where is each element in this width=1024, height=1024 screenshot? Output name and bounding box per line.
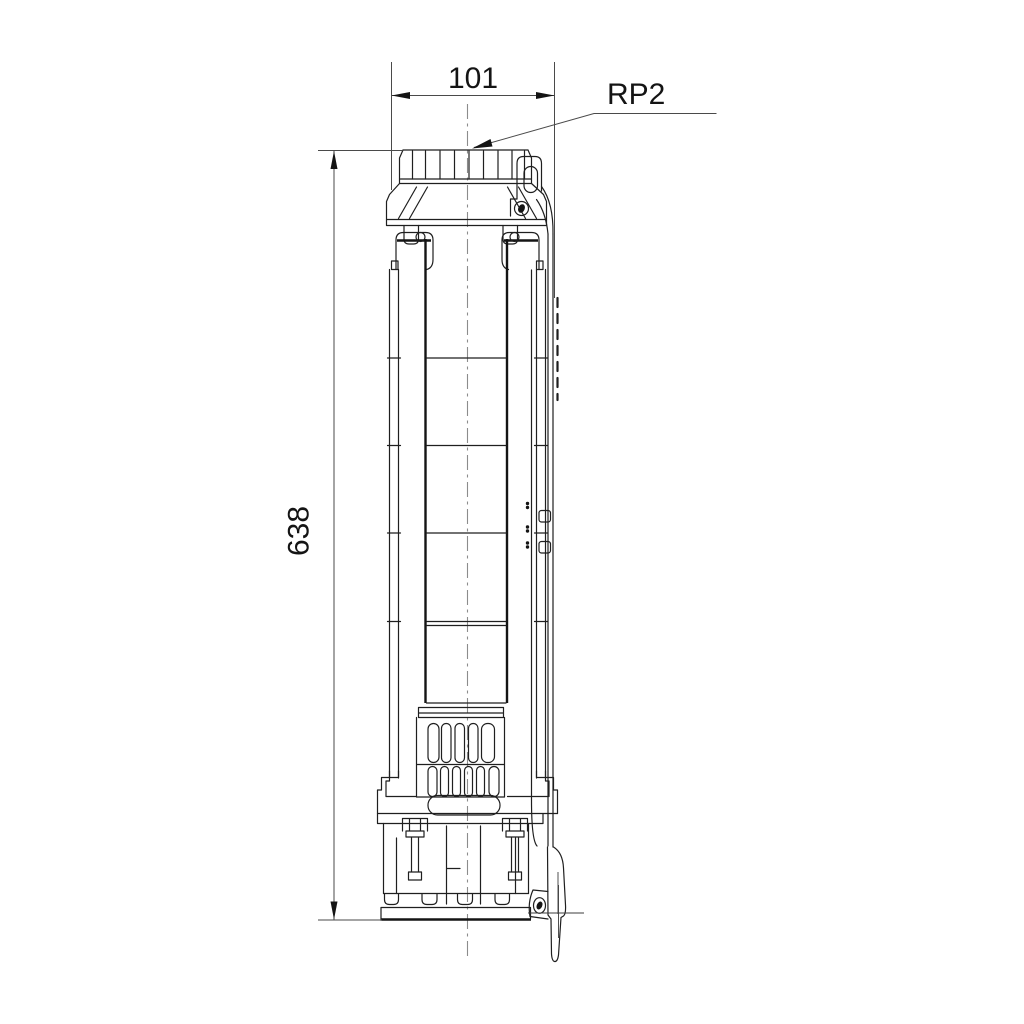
arrowhead-right xyxy=(536,92,555,99)
clamp-mark xyxy=(526,529,529,532)
strainer-slot xyxy=(465,767,473,797)
clamp-mark xyxy=(526,545,529,548)
height-dimension-value: 638 xyxy=(283,506,316,556)
crown-serrations xyxy=(413,151,525,179)
motor-feet-profile xyxy=(384,894,529,905)
strap-lug-left xyxy=(392,261,399,270)
strainer-slot xyxy=(477,767,485,797)
strainer-slot xyxy=(453,767,461,797)
width-dimension-value: 101 xyxy=(448,62,498,95)
lower-band xyxy=(419,703,507,718)
connection-callout: RP2 xyxy=(472,78,717,149)
clamp-mark xyxy=(526,506,529,509)
cable-clamp xyxy=(539,542,551,554)
pump-head xyxy=(387,150,547,244)
chamber-division-lines xyxy=(427,358,507,626)
chamber-stack xyxy=(419,239,508,718)
strainer-slot xyxy=(469,724,479,763)
pump-dimensional-drawing: 101 638 RP2 xyxy=(0,0,1024,1024)
cable-clamp xyxy=(539,511,551,523)
cable-guard xyxy=(526,234,584,962)
arrowhead-top xyxy=(331,151,338,169)
arrowhead-bottom xyxy=(331,902,338,920)
motor-column xyxy=(447,826,481,904)
clamp-mark xyxy=(526,525,529,528)
guard-channel-lines xyxy=(532,234,554,847)
motor-bolt-left xyxy=(403,819,428,881)
chamber-walls xyxy=(426,239,508,703)
leader-line xyxy=(474,114,717,148)
clamp-mark xyxy=(526,502,529,505)
dimension-width: 101 xyxy=(392,62,555,298)
width-extension-lines xyxy=(392,62,555,298)
clamp-mark xyxy=(526,541,529,544)
suction-body xyxy=(428,796,500,816)
strap-lug-right xyxy=(537,261,544,270)
drawing-svg: 101 638 RP2 xyxy=(0,0,1024,1024)
strainer-slot xyxy=(482,724,495,763)
strainer-slot xyxy=(455,724,465,763)
motor-base xyxy=(381,908,531,920)
arrowhead-left xyxy=(392,92,411,99)
connection-size-label: RP2 xyxy=(607,78,665,111)
motor-sides xyxy=(384,824,529,894)
strainer-slot xyxy=(442,724,452,763)
suction-strainer xyxy=(417,718,505,816)
strainer-slot xyxy=(428,767,437,797)
dimension-height: 638 xyxy=(283,151,403,921)
strainer-slot xyxy=(441,767,449,797)
guard-blade xyxy=(548,847,566,962)
leader-arrowhead xyxy=(472,139,493,149)
strainer-slot xyxy=(428,724,439,763)
strainer-slot xyxy=(489,767,499,797)
guard-screw-core xyxy=(535,901,543,911)
